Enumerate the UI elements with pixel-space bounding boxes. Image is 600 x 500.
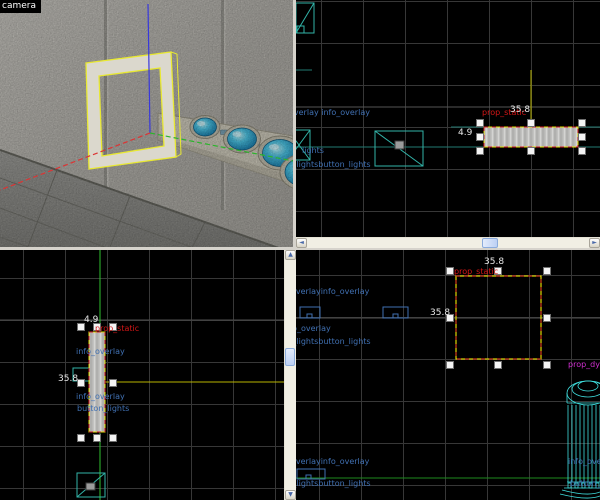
vertical-scroll-thumb[interactable] [285, 348, 295, 366]
viewport-3d-camera[interactable]: camera [0, 0, 293, 247]
prop-dynamic-column-wireframe[interactable] [560, 381, 600, 498]
horizontal-scrollbar[interactable]: ◄ ► [296, 237, 600, 248]
horizontal-scroll-thumb[interactable] [482, 238, 498, 248]
concrete-noise-overlay [0, 0, 293, 247]
horizontal-splitter-right[interactable] [293, 248, 600, 250]
scroll-right-icon: ► [592, 239, 597, 246]
viewport-2d-side[interactable]: info_overlayinfo_overlay info_overlay bu… [296, 250, 600, 500]
side-view-canvas[interactable] [296, 250, 600, 500]
entity-helper-box[interactable] [375, 131, 423, 166]
scroll-up-button[interactable]: ▲ [285, 250, 296, 260]
entity-helper-box[interactable] [296, 130, 310, 160]
viewport-2d-front[interactable]: 4.9 prop_static info_overlay 35.8 info_o… [0, 250, 284, 500]
horizontal-splitter-left[interactable] [0, 247, 293, 250]
selected-prop-static[interactable] [484, 127, 578, 147]
scroll-left-icon: ◄ [299, 239, 304, 246]
entity-helper-box[interactable] [296, 3, 314, 33]
top-view-canvas[interactable] [296, 0, 600, 237]
scroll-right-button[interactable]: ► [589, 238, 600, 248]
scroll-down-icon: ▼ [288, 491, 293, 498]
viewport-2d-top[interactable]: info_overlay info_overlay lights button_… [296, 0, 600, 237]
scroll-down-button[interactable]: ▼ [285, 490, 296, 500]
overlay-entity-box[interactable] [383, 307, 408, 318]
selected-prop-static[interactable] [89, 332, 105, 432]
front-view-canvas[interactable] [0, 250, 284, 500]
camera-view-label: camera [0, 0, 41, 13]
scroll-left-button[interactable]: ◄ [296, 238, 307, 248]
vertical-scrollbar[interactable]: ▲ ▼ [284, 250, 296, 500]
overlay-entity-box[interactable] [300, 307, 320, 318]
camera-view-canvas[interactable] [0, 0, 293, 247]
entity-helper-box[interactable] [77, 473, 105, 497]
hammer-editor-4view: camera [0, 0, 600, 500]
vertical-splitter[interactable] [293, 0, 296, 248]
scroll-up-icon: ▲ [288, 251, 293, 258]
